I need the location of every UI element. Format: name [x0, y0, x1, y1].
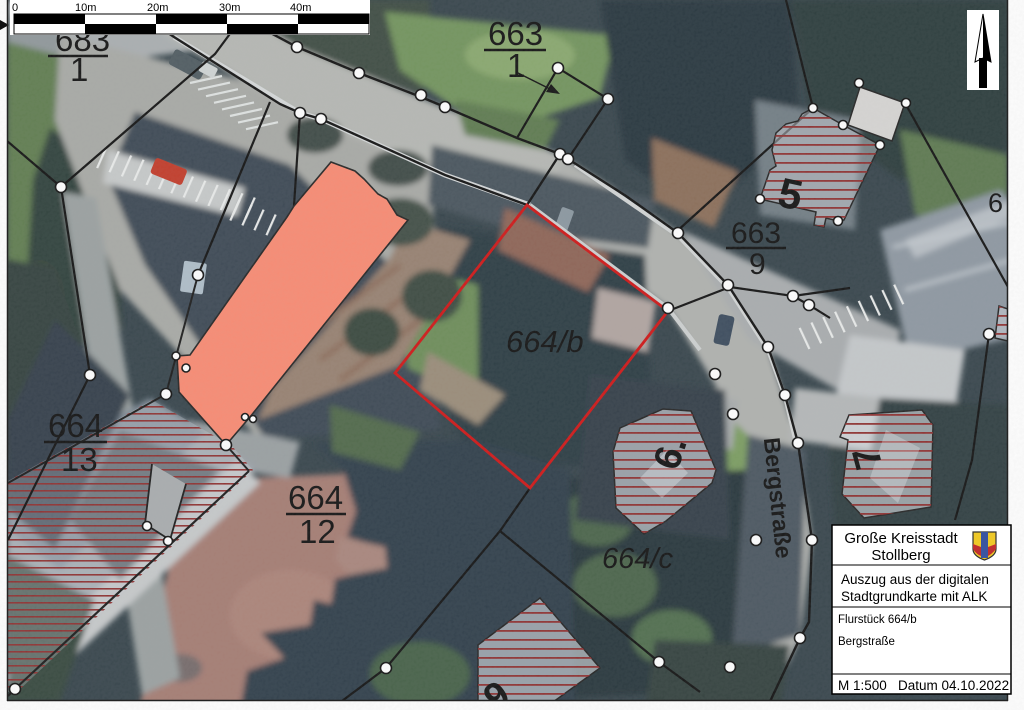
svg-text:10m: 10m — [75, 2, 96, 14]
svg-text:Bergstraße: Bergstraße — [838, 636, 895, 648]
svg-text:Flurstück 664/b: Flurstück 664/b — [838, 614, 917, 626]
svg-text:30m: 30m — [219, 2, 240, 14]
svg-text:20m: 20m — [147, 2, 168, 14]
svg-text:Stollberg: Stollberg — [871, 547, 930, 564]
svg-text:Große Kreisstadt: Große Kreisstadt — [844, 530, 958, 547]
svg-text:0: 0 — [12, 2, 18, 14]
svg-text:Stadtgrundkarte mit ALK: Stadtgrundkarte mit ALK — [841, 589, 987, 604]
svg-text:40m: 40m — [290, 2, 311, 14]
svg-text:Datum 04.10.2022: Datum 04.10.2022 — [898, 678, 1009, 693]
svg-text:Auszug aus der digitalen: Auszug aus der digitalen — [841, 572, 989, 587]
svg-text:M 1:500: M 1:500 — [838, 678, 887, 693]
